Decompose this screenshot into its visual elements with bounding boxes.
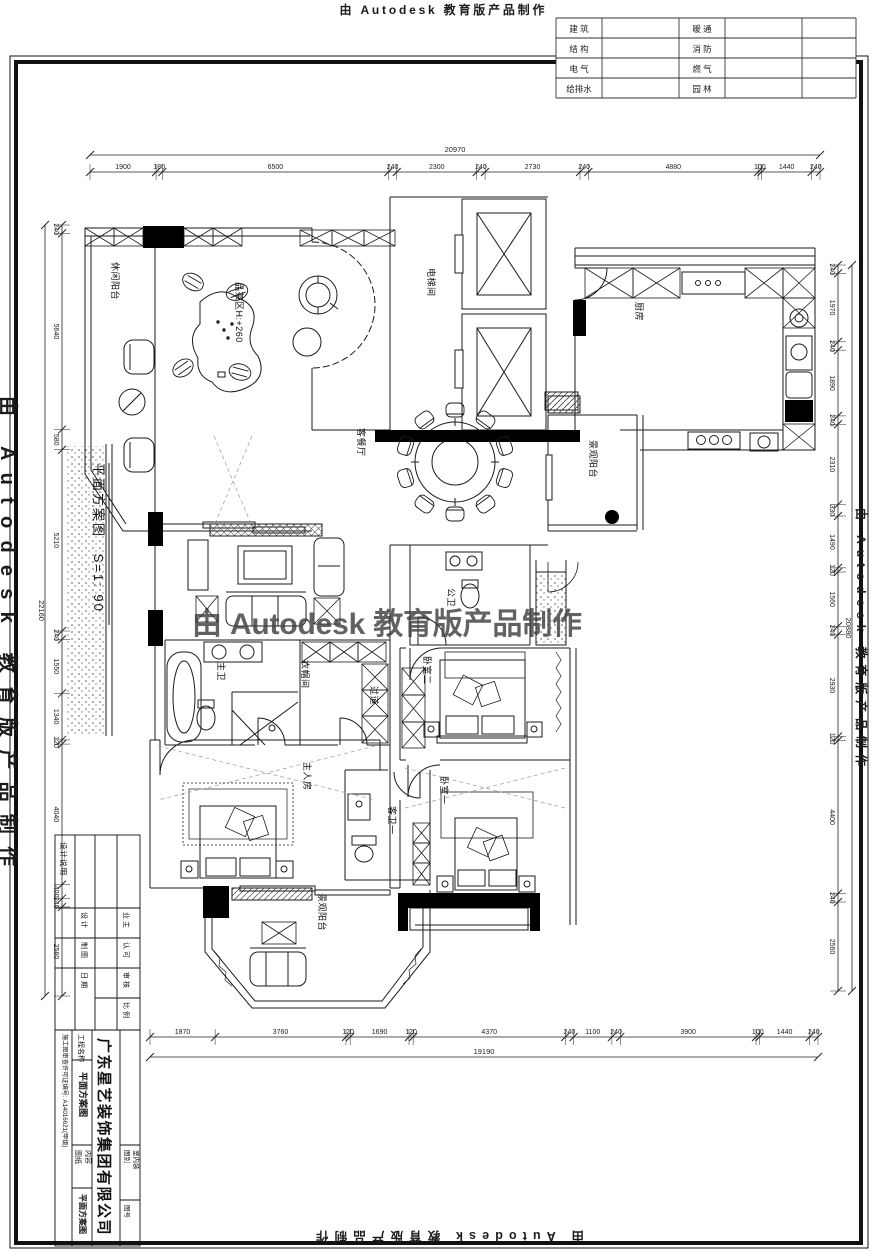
x-box-diagonals [783,424,815,450]
discipline-label: 建 筑 [569,24,589,34]
title-block-row-label: 设 计 [80,912,89,928]
dim-label: 240 [828,414,835,426]
dim-label: 400 [52,886,59,898]
dining-chair [413,409,436,431]
dining-chair [446,507,464,521]
room-label: 衣帽间 [300,660,311,689]
dim-label: 2300 [429,164,445,171]
title-block: 设计说明 设 计制 图日 期业 主认 可审 核比 例 施工图审查许可证编号: A… [55,835,141,1246]
room-label: 公卫 [446,588,456,607]
dining-chair [413,493,436,515]
dim-label: 1440 [777,1029,793,1036]
dim-label: 2310 [828,457,835,473]
dim-label: 5210 [52,533,59,549]
sheet-content-label-2: 内容 [84,1150,93,1164]
x-box-diagonals [413,843,430,863]
dim-label: 100 [754,164,766,171]
cabinet-hatch-boxes [85,228,815,944]
license-number: 施工图审查许可证编号: A14016621(甲级) [61,1034,69,1147]
room-label: 厨房 [634,302,645,321]
tea-stool [179,270,206,295]
room-label: 景观阳台 [317,893,328,931]
x-box-diagonals [783,298,815,328]
dim-label: 1100 [585,1029,600,1036]
title-block-row-label: 比 例 [122,1002,131,1018]
dim-total-label: 20880 [844,618,853,639]
title-block-row-label: 业 主 [122,912,131,928]
x-box-diagonals [213,228,242,246]
svg-text:平面方案图 S=1: 90: 平面方案图 S=1: 90 [91,463,106,613]
x-box-diagonals [302,642,330,662]
title-block-row-label: 制 图 [80,942,89,958]
discipline-label: 园 林 [692,84,712,94]
room-label: 卧室一 [439,776,450,805]
dim-label: 3760 [273,1029,289,1036]
x-box-diagonals [358,642,386,662]
dim-label: 4880 [665,164,681,171]
watermarks: 由 Autodesk 教育版产品制作 由 Autodesk 教育版产品制作 由 … [0,2,869,1244]
dim-label: 120 [828,733,835,745]
plan-scale-text: S=1: 90 [91,554,106,613]
dim-label: 120 [342,1029,354,1036]
x-box-diagonals [413,863,430,885]
room-label: 卧室二 [422,656,433,685]
discipline-label: 燃 气 [692,64,712,74]
dim-label: 2560 [828,939,835,955]
dim-label: 330 [828,504,835,516]
dim-label: 240 [828,625,835,637]
dining-chair [495,467,514,488]
dim-label: 1490 [828,534,835,550]
dim-label: 1560 [828,591,835,607]
dim-label: 1550 [52,659,59,675]
dim-label: 1340 [52,709,59,725]
x-box-diagonals [402,668,425,695]
watermark-overlay: 由 Autodesk 教育版产品制作 [192,607,582,641]
dim-label: 1690 [372,1029,388,1036]
discipline-table: 建 筑暖 通结 构消 防电 气燃 气给排水园 林 [556,18,856,98]
sheet-type-label: 图别 [123,1150,132,1163]
dim-label: 240 [810,164,822,171]
dim-label: 120 [405,1029,417,1036]
x-box-diagonals [300,230,332,246]
title-block-row-label: 审 核 [122,972,131,988]
room-label: 客卫一 [387,806,398,835]
dim-label: 4040 [52,807,59,823]
x-box-diagonals [184,228,213,246]
dim-label: 2730 [525,164,541,171]
dim-label: 6500 [268,164,284,171]
dim-label: 5640 [52,324,59,340]
company-name: 广东星艺装饰集团有限公司 [95,1038,113,1236]
dim-label: 2930 [828,678,835,694]
x-box-diagonals [332,230,364,246]
sheet-border [10,56,868,1248]
dim-label: 240 [387,164,399,171]
title-block-row-label: 认 可 [122,942,131,958]
dim-label: 120 [828,564,835,576]
room-label: 景观阳台 [588,440,599,478]
dim-label: 240 [52,223,59,235]
dim-label: 3900 [680,1029,696,1036]
dining-chair [396,467,415,488]
dim-label: 2560 [52,944,59,960]
dim-label: 240 [610,1029,622,1036]
sheet-type-value: 室内装 [132,1150,141,1170]
room-label: 电梯间 [426,268,437,297]
x-box-diagonals [362,716,388,743]
room-label: 主人房 [302,762,313,791]
tea-stool [169,355,196,381]
dim-total-label: 20970 [445,145,466,154]
sheet-number-label: 图号 [123,1205,131,1219]
dim-label: 580 [52,434,59,446]
dim-label: 120 [52,736,59,748]
dim-label: 240 [564,1029,576,1036]
dim-label: 1870 [175,1029,191,1036]
dim-label: 240 [808,1029,820,1036]
project-name-label: 工程名称 [77,1034,86,1062]
x-box-diagonals [114,228,143,246]
sheet-content-value: 平面方案图 [78,1194,88,1234]
x-box-diagonals [262,922,296,944]
dim-label: 240 [828,892,835,904]
x-box-diagonals [413,823,430,843]
room-label: 休闲阳台 [110,262,121,300]
dim-label: 240 [475,164,487,171]
discipline-label: 消 防 [692,44,712,54]
discipline-label: 给排水 [566,84,592,94]
x-box-diagonals [783,268,815,298]
dim-label: 4400 [828,809,835,825]
dim-total-label: 22160 [37,600,46,621]
x-box-diagonals [85,228,114,246]
watermark-top: 由 Autodesk 教育版产品制作 [340,2,545,17]
dim-label: 240 [828,263,835,275]
x-box-diagonals [633,268,680,298]
dining-chair [474,409,497,431]
x-box-diagonals [745,268,783,298]
project-name-value: 平面方案图 [78,1072,89,1117]
dim-label: 180 [153,164,165,171]
discipline-label: 电 气 [569,64,589,74]
room-label: 客餐厅 [356,428,367,457]
dining-chair [474,493,497,515]
dim-total-label: 19190 [474,1047,495,1056]
dim-label: 100 [752,1029,764,1036]
dining-chair [446,403,464,417]
dim-label: 4370 [481,1029,497,1036]
dim-label: 240 [828,340,835,352]
discipline-label: 结 构 [569,44,588,54]
dim-label: 1970 [828,300,835,316]
walls-and-furniture [66,197,815,1008]
x-box-diagonals [402,695,425,722]
sheet-content-label-1: 图纸 [74,1150,83,1164]
dim-label: 1890 [828,375,835,391]
tea-stool [227,361,252,382]
x-box-diagonals [585,268,633,298]
dim-label: 240 [52,897,59,909]
plan-title-text: 平面方案图 [91,463,106,538]
room-label: 品茶区H:+260 [234,282,245,343]
dim-label: 240 [578,164,590,171]
dim-label: 1440 [779,164,795,171]
dim-label: 1900 [115,164,131,171]
design-note: 设计说明 [59,842,69,876]
room-label: 主卫 [216,662,227,681]
x-box-diagonals [330,642,358,662]
drawing-sheet: 休闲阳台品茶区H:+260电梯间厨房客餐厅景观阳台公卫主卫衣帽间过道卧室二卧室一… [0,0,878,1254]
room-label: 过道 [369,686,380,705]
dim-label: 240 [52,629,59,641]
discipline-label: 暖 通 [692,24,712,34]
x-box-diagonals [402,722,425,748]
floor-plan-svg: 休闲阳台品茶区H:+260电梯间厨房客餐厅景观阳台公卫主卫衣帽间过道卧室二卧室一… [0,0,878,1254]
title-block-row-label: 日 期 [80,972,88,988]
